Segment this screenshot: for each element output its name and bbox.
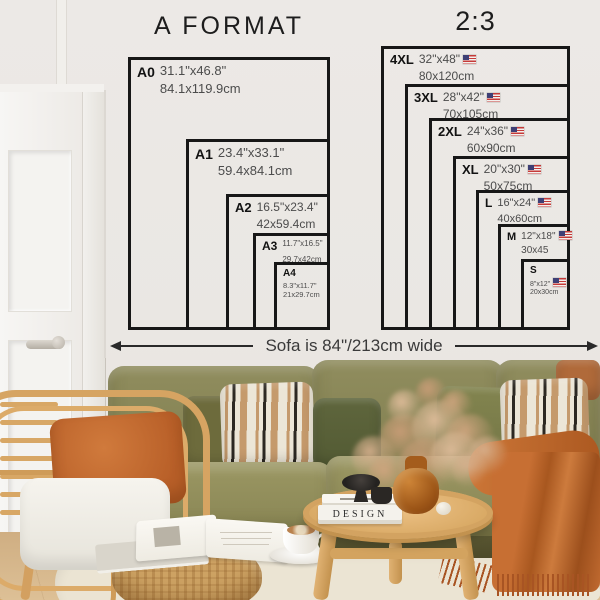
arrowhead-left-icon xyxy=(110,341,121,351)
coffee-surface xyxy=(287,525,315,535)
size-cm: 30x45 xyxy=(521,244,571,257)
size-label: L16"x24"40x60cm xyxy=(479,193,567,226)
book-photo xyxy=(153,526,181,547)
pampas-puff xyxy=(452,452,488,488)
book-text-line xyxy=(223,544,269,545)
size-code: L xyxy=(485,196,492,212)
size-inches: 12"x18" xyxy=(521,230,571,244)
size-label: A031.1"x46.8"84.1x119.9cm xyxy=(131,60,327,98)
black-cup xyxy=(371,487,392,504)
design-book: DESIGN xyxy=(318,505,402,524)
size-inches: 28"x42" xyxy=(443,90,565,107)
book-text-line xyxy=(221,538,271,539)
size-code: A4 xyxy=(283,268,325,281)
design-book-spine-text: DESIGN xyxy=(333,509,388,520)
sofa-width-arrow: Sofa is 84"/213cm wide xyxy=(110,335,598,357)
arrow-line-right xyxy=(455,345,587,347)
table-stretcher xyxy=(330,548,468,559)
pampas-puff xyxy=(388,390,422,424)
pampas-puff xyxy=(440,390,472,422)
size-inches: 23.4"x33.1" xyxy=(218,145,325,163)
a-format-title: A FORMAT xyxy=(118,12,340,41)
size-inches: 31.1"x46.8" xyxy=(160,63,325,81)
size-code: 4XL xyxy=(390,52,414,69)
size-cm: 80x120cm xyxy=(419,69,565,85)
us-flag-icon xyxy=(538,198,551,207)
size-code: A2 xyxy=(235,200,252,217)
amber-vase xyxy=(393,468,439,514)
us-flag-icon xyxy=(528,165,541,174)
us-flag-icon xyxy=(559,231,572,240)
size-code: S xyxy=(530,265,565,278)
size-inches: 16"x24" xyxy=(497,196,565,212)
sofa-width-label: Sofa is 84"/213cm wide xyxy=(253,336,454,356)
size-label: A216.5"x23.4"42x59.4cm xyxy=(229,197,327,232)
size-label: A123.4"x33.1"59.4x84.1cm xyxy=(189,142,327,180)
size-label: A48.3"x11.7"21x29.7cm xyxy=(277,265,327,299)
striped-pillow xyxy=(220,381,316,469)
us-flag-icon xyxy=(463,55,476,64)
size-label: M12"x18"30x45 xyxy=(501,227,567,257)
size-inches: 8.3"x11.7" xyxy=(283,281,325,290)
throw-blanket xyxy=(492,452,600,592)
size-cm: 20x30cm xyxy=(530,289,565,298)
living-room-scene: A FORMAT 2:3 A031.1"x46.8"84.1x119.9cmA1… xyxy=(0,0,600,600)
size-label: S8"x12"20x30cm xyxy=(524,262,567,298)
size-inches: 32"x48" xyxy=(419,52,565,69)
throw-blanket-fringe xyxy=(497,574,589,596)
size-label: A311.7"x16.5"29.7x42cm xyxy=(256,236,327,265)
ratio-2-3-title: 2:3 xyxy=(381,6,570,37)
wall-molding-vertical xyxy=(56,0,67,85)
a-format-size-rect-a4: A48.3"x11.7"21x29.7cm xyxy=(274,262,330,330)
size-code: XL xyxy=(462,162,479,179)
size-cm: 84.1x119.9cm xyxy=(160,81,325,98)
arrow-line-left xyxy=(121,345,253,347)
size-cm: 42x59.4cm xyxy=(257,217,325,233)
size-inches: 20"x30" xyxy=(484,162,565,179)
size-code: 3XL xyxy=(414,90,438,107)
size-cm: 59.4x84.1cm xyxy=(218,163,325,180)
size-code: A1 xyxy=(195,145,213,163)
size-label: 4XL32"x48"80x120cm xyxy=(384,49,567,84)
size-cm: 60x90cm xyxy=(467,141,565,157)
size-cm: 21x29.7cm xyxy=(283,290,325,299)
size-code: A3 xyxy=(262,239,277,255)
us-flag-icon xyxy=(511,127,524,136)
us-flag-icon xyxy=(487,93,500,102)
size-code: 2XL xyxy=(438,124,462,141)
door-handle-rose xyxy=(52,336,65,349)
book-text-line xyxy=(220,532,272,533)
table-leg xyxy=(389,540,402,584)
us-flag-icon xyxy=(553,278,566,287)
wall-corner-line xyxy=(104,90,106,358)
ratio23-size-rect-s: S8"x12"20x30cm xyxy=(521,259,570,330)
size-inches: 11.7"x16.5" xyxy=(282,239,325,255)
size-label: 2XL24"x36"60x90cm xyxy=(432,121,567,156)
arrowhead-right-icon xyxy=(587,341,598,351)
door-panel-upper xyxy=(8,150,72,312)
size-code: M xyxy=(507,230,516,244)
decor-sphere xyxy=(436,502,451,515)
size-inches: 8"x12" xyxy=(530,278,565,290)
size-inches: 16.5"x23.4" xyxy=(257,200,325,217)
size-inches: 24"x36" xyxy=(467,124,565,141)
size-code: A0 xyxy=(137,63,155,81)
